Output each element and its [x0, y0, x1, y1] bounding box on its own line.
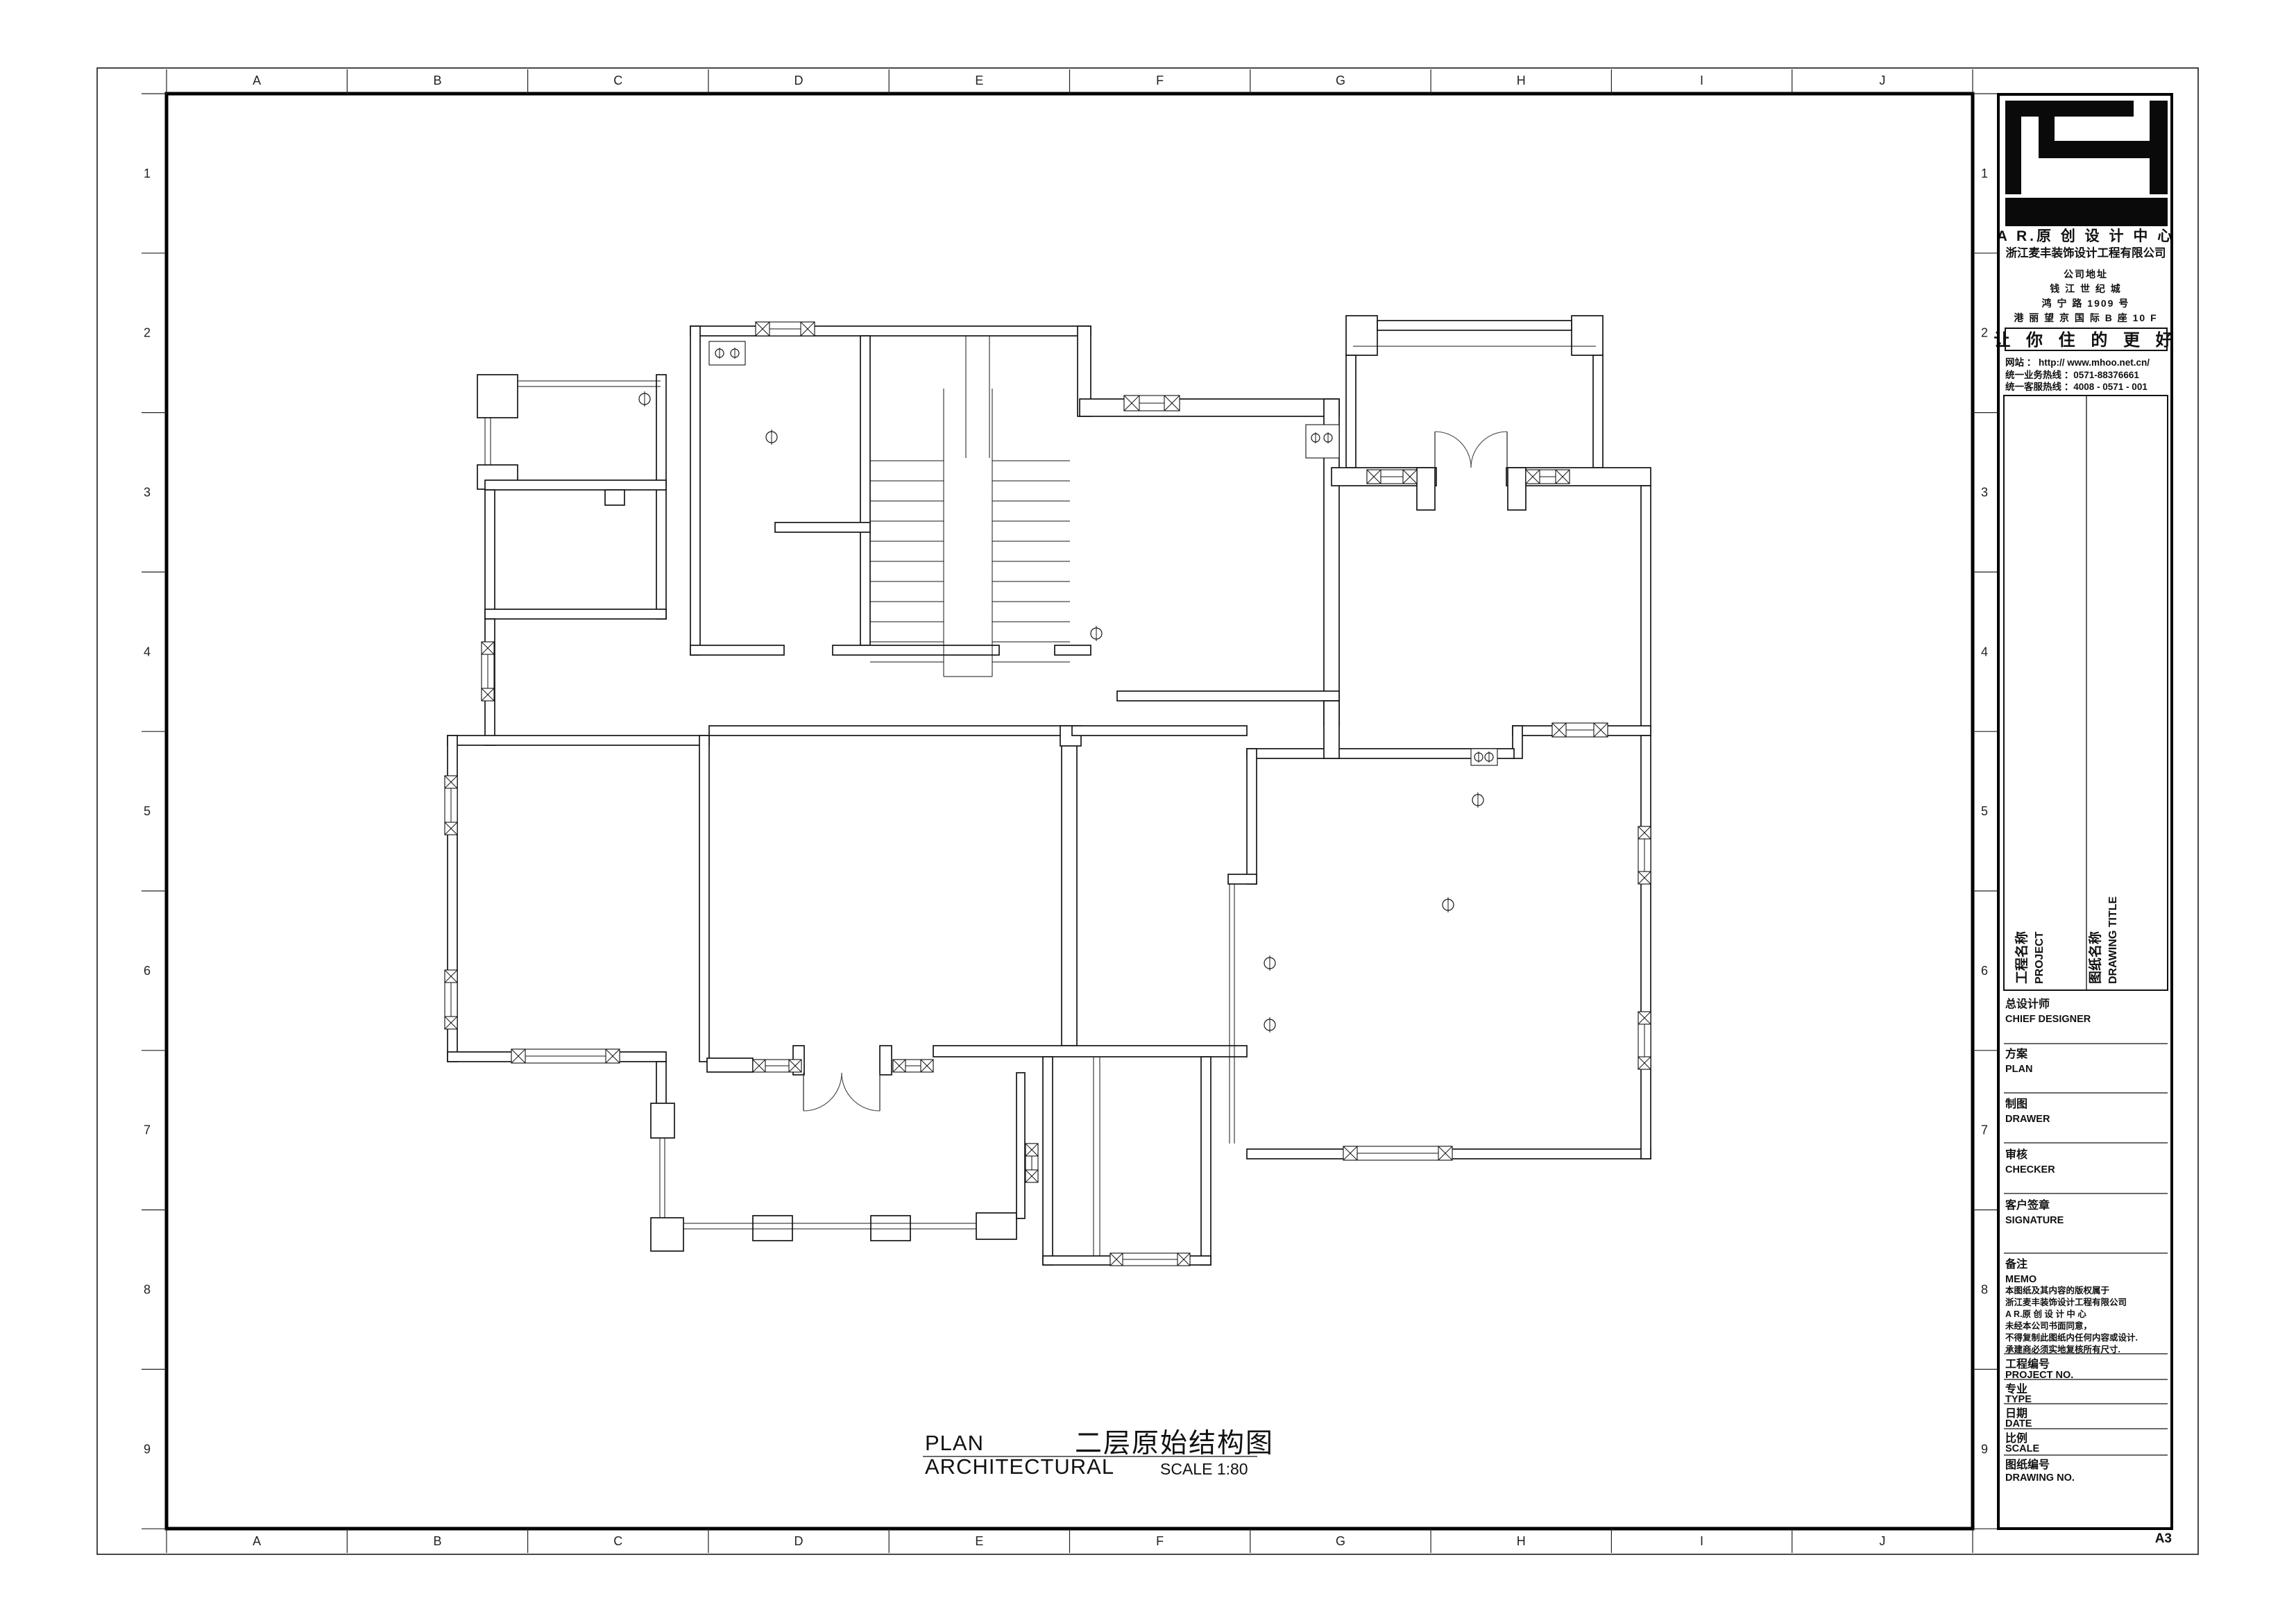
- grid-number-right: 3: [1981, 486, 1988, 500]
- section-label-cn: 图纸编号: [2005, 1458, 2050, 1471]
- window: [511, 1049, 620, 1063]
- window: [482, 642, 494, 701]
- wall: [1201, 1057, 1211, 1265]
- grid-letter-bottom: G: [1336, 1534, 1345, 1548]
- hinge-symbol: [1443, 897, 1454, 912]
- hinge-symbol: [766, 430, 777, 445]
- grid-number-left: 8: [144, 1283, 151, 1297]
- wall: [1117, 691, 1339, 701]
- address-line: 钱 江 世 纪 城: [2050, 283, 2122, 294]
- window: [1343, 1146, 1452, 1160]
- wall: [690, 645, 784, 655]
- sheet-frame: [97, 68, 2198, 1554]
- wall: [1508, 468, 1526, 510]
- plan-scale: SCALE 1:80: [1160, 1460, 1248, 1478]
- wall: [1062, 736, 1077, 1046]
- grid-letter-top: E: [975, 74, 983, 87]
- title-block: AR.DESIGN A R.原 创 设 计 中 心 浙江麦丰装饰设计工程有限公司…: [1993, 94, 2177, 1546]
- section-label-en: PLAN: [2005, 1064, 2032, 1075]
- wall: [1072, 726, 1247, 736]
- project-label-en: PROJECT: [2034, 931, 2046, 984]
- section-label-en: DATE: [2005, 1418, 2032, 1429]
- memo-line: 浙江麦丰装饰设计工程有限公司: [2005, 1297, 2127, 1307]
- wall: [1017, 1073, 1025, 1218]
- drawing-label-en: DRAWING TITLE: [2107, 896, 2119, 984]
- section-label-cn: 客户签章: [2005, 1198, 2050, 1212]
- memo-line: 承建商必须实地复核所有尺寸.: [2005, 1344, 2120, 1354]
- wall: [933, 1046, 1247, 1057]
- wall: [1641, 736, 1651, 1159]
- floor-plan: [445, 316, 1651, 1266]
- ar-logo-mark: [2039, 141, 2151, 158]
- address-line: 港 丽 望 京 国 际 B 座 10 F: [2014, 312, 2157, 323]
- website: 网站 ： http:// www.mhoo.net.cn/: [2005, 357, 2150, 368]
- memo-line: 未经本公司书面同意，: [2005, 1320, 2092, 1331]
- memo-line: 不得复制此图纸内任何内容或设计.: [2005, 1332, 2138, 1343]
- wall: [1055, 645, 1091, 655]
- outer-border: [97, 68, 2198, 1554]
- double-door: [1435, 432, 1507, 468]
- hinge-symbol: [1264, 1017, 1275, 1033]
- brand-chinese: A R.原 创 设 计 中 心: [1997, 228, 2175, 244]
- hinge-symbol: [1264, 955, 1275, 971]
- section-label-cn: 审核: [2005, 1148, 2027, 1161]
- wall: [1377, 321, 1572, 330]
- hinge-symbol: [639, 391, 650, 407]
- window: [756, 322, 815, 336]
- grid-letter-bottom: D: [794, 1534, 803, 1548]
- grid-letter-bottom: E: [975, 1534, 983, 1548]
- window: [753, 1060, 801, 1072]
- plan-title-en-line1: PLAN: [925, 1431, 984, 1455]
- wall: [651, 1218, 683, 1251]
- wall: [1346, 316, 1377, 355]
- wall: [871, 1216, 910, 1241]
- grid-number-right: 4: [1981, 645, 1988, 658]
- brand-band: [2005, 198, 2168, 226]
- grid-number-right: 1: [1981, 167, 1988, 180]
- grid-letter-bottom: A: [253, 1534, 261, 1548]
- grid-letter-top: I: [1700, 74, 1703, 87]
- grid-number-right: 8: [1981, 1283, 1988, 1297]
- wall: [485, 480, 666, 490]
- wall: [699, 736, 709, 1062]
- wall: [656, 1062, 666, 1105]
- grid-number-right: 7: [1981, 1123, 1988, 1137]
- company-name: 浙江麦丰装饰设计工程有限公司: [2006, 246, 2166, 260]
- wall: [753, 1216, 792, 1241]
- drawing-title-group: PLAN ARCHITECTURAL 二层原始结构图 SCALE 1:80: [923, 1429, 1274, 1479]
- wall: [1043, 1057, 1053, 1265]
- window: [1526, 470, 1570, 484]
- grid-number-left: 6: [144, 964, 151, 978]
- window: [1026, 1144, 1038, 1182]
- grid-number-left: 9: [144, 1442, 151, 1456]
- grid-number-left: 4: [144, 645, 151, 658]
- wall: [976, 1213, 1017, 1239]
- grid-number-right: 2: [1981, 326, 1988, 340]
- grid-number-right: 6: [1981, 964, 1988, 978]
- ar-logo-mark: [2005, 101, 2134, 117]
- wall: [707, 1058, 753, 1072]
- fixture-box: [709, 341, 745, 365]
- grid-letter-bottom: F: [1156, 1534, 1164, 1548]
- grid-number-left: 5: [144, 804, 151, 818]
- wall: [1593, 355, 1603, 468]
- section-label-en: SCALE: [2005, 1443, 2039, 1454]
- section-label-en: SIGNATURE: [2005, 1215, 2064, 1226]
- wall: [485, 609, 666, 619]
- section-label-cn: 备注: [2005, 1257, 2027, 1271]
- grid-letter-top: C: [613, 74, 622, 87]
- window: [1124, 396, 1180, 411]
- fixture-box: [1306, 425, 1339, 458]
- section-label-en: CHECKER: [2005, 1164, 2055, 1175]
- section-label-en: CHIEF DESIGNER: [2005, 1014, 2091, 1025]
- grid-number-left: 3: [144, 486, 151, 500]
- wall: [605, 490, 624, 505]
- grid-letter-bottom: H: [1517, 1534, 1526, 1548]
- wall: [690, 326, 700, 655]
- grid-letter-bottom: I: [1700, 1534, 1703, 1548]
- wall: [690, 326, 1091, 336]
- window: [893, 1060, 933, 1072]
- grid-letter-bottom: B: [433, 1534, 441, 1548]
- memo-line: A R.原 创 设 计 中 心: [2005, 1309, 2086, 1319]
- project-label-cn: 工程名称: [2014, 931, 2030, 984]
- wall: [709, 726, 1072, 736]
- grid-letter-bottom: J: [1879, 1534, 1885, 1548]
- window: [1110, 1253, 1190, 1266]
- double-door: [803, 1073, 880, 1111]
- wall: [477, 375, 518, 418]
- wall: [1572, 316, 1603, 355]
- window: [445, 970, 457, 1029]
- wall: [1324, 701, 1339, 758]
- wall: [1641, 486, 1651, 736]
- wall: [656, 375, 666, 619]
- window: [1638, 826, 1651, 884]
- grid-letter-top: B: [433, 74, 441, 87]
- grid-letter-bottom: C: [613, 1534, 622, 1548]
- wall: [1346, 355, 1356, 468]
- grid-number-right: 9: [1981, 1442, 1988, 1456]
- hinge-symbol: [1091, 626, 1102, 641]
- memo-line: 本图纸及其内容的版权属于: [2005, 1285, 2110, 1295]
- grid-number-left: 7: [144, 1123, 151, 1137]
- grid-number-right: 5: [1981, 804, 1988, 818]
- hotline-service: 统一客服热线 ：4008 - 0571 - 001: [2005, 381, 2148, 392]
- section-label-cn: 制图: [2005, 1098, 2027, 1110]
- wall: [1247, 749, 1257, 884]
- wall: [1417, 468, 1435, 510]
- drawing-label-cn: 图纸名称: [2087, 931, 2103, 984]
- wall: [1080, 399, 1339, 416]
- window: [445, 776, 457, 835]
- grid-number-left: 1: [144, 167, 151, 180]
- wall: [880, 1046, 892, 1075]
- slogan: 让 你 住 的 更 好: [1993, 330, 2177, 350]
- window: [1367, 470, 1417, 484]
- window: [1638, 1012, 1651, 1069]
- plan-title-cn: 二层原始结构图: [1075, 1429, 1274, 1459]
- section-label-en: MEMO: [2005, 1274, 2036, 1285]
- wall: [485, 490, 495, 619]
- wall: [860, 336, 870, 645]
- name-columns-box: [2004, 396, 2168, 990]
- cad-drawing-sheet: AABBCCDDEEFFGGHHIIJJ112233445566778899 A…: [0, 0, 2296, 1623]
- grid-letter-top: A: [253, 74, 261, 87]
- section-label-cn: 总设计师: [2005, 997, 2050, 1010]
- hinge-symbol: [1472, 792, 1483, 808]
- section-label-cn: 方案: [2005, 1047, 2028, 1060]
- section-label-en: DRAWER: [2005, 1114, 2050, 1125]
- wall: [651, 1103, 674, 1138]
- address-label: 公司地址: [2064, 269, 2108, 280]
- wall: [833, 645, 999, 655]
- ar-logo-mark: [2150, 101, 2168, 194]
- sheet-size-label: A3: [2155, 1531, 2172, 1546]
- section-label-en: DRAWING NO.: [2005, 1472, 2075, 1484]
- grid-letter-top: G: [1336, 74, 1345, 87]
- grid-letter-top: F: [1156, 74, 1164, 87]
- address-line: 鸿 宁 路 1909 号: [2042, 298, 2130, 309]
- grid-letter-top: D: [794, 74, 803, 87]
- wall: [775, 522, 870, 532]
- wall: [448, 736, 709, 745]
- grid-letter-top: J: [1879, 74, 1885, 87]
- wall: [1228, 874, 1257, 884]
- section-label-cn: 工程编号: [2005, 1357, 2050, 1370]
- grid-number-left: 2: [144, 326, 151, 340]
- window: [1552, 723, 1608, 737]
- hotline-business: 统一业务热线 ：0571-88376661: [2005, 369, 2139, 380]
- grid-letter-top: H: [1517, 74, 1526, 87]
